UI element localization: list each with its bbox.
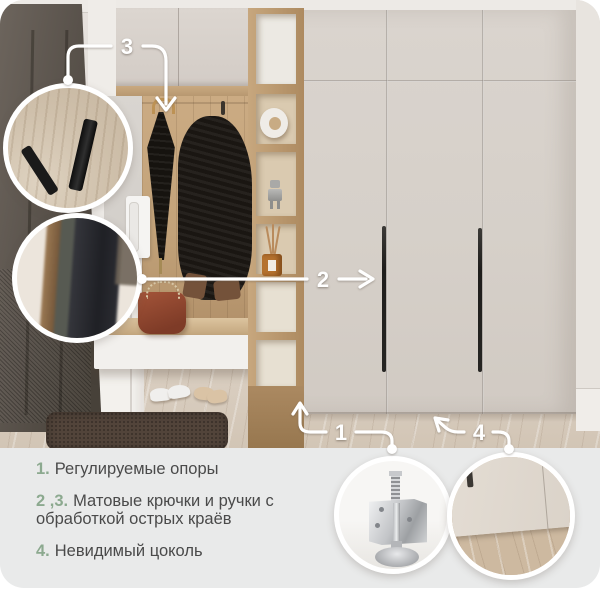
wardrobe-handle-right (478, 228, 482, 372)
ring-hole (269, 117, 281, 130)
wardrobe-door-seam (482, 10, 484, 414)
bag-chain-strap (146, 281, 180, 299)
coat-cuff (182, 272, 208, 299)
reed-stick (273, 226, 280, 256)
foot-base-disc (375, 547, 419, 567)
baseboard (576, 388, 600, 431)
robot-figurine (266, 180, 284, 210)
wardrobe-handle-left (382, 226, 386, 372)
feature-text: Регулируемые опоры (55, 460, 219, 478)
robot-head (270, 180, 280, 188)
plinth-door-seam (540, 452, 548, 529)
foot-rod-lower (393, 503, 400, 545)
feature-item-1: 1.Регулируемые опоры (36, 460, 344, 479)
bracket-hole (379, 507, 384, 512)
bracket-hole (375, 523, 380, 528)
hook-arm-right (68, 118, 98, 191)
ring-sculpture (260, 108, 288, 138)
umbrella-tip (159, 258, 162, 274)
features-list: 1.Регулируемые опоры 2 ,3.Матовые крючки… (36, 460, 344, 574)
shelf-base (248, 386, 304, 448)
shelf-compartment (256, 14, 296, 84)
inset-photo-handle-profile (12, 213, 142, 343)
robot-leg (277, 201, 280, 209)
bench-drawer (94, 335, 254, 369)
feature-item-4: 4.Невидимый цоколь (36, 542, 344, 561)
cabinet-seam (178, 8, 179, 86)
callout-label-4: 4 (464, 420, 494, 446)
handle-closeup (12, 213, 142, 343)
leather-bag (138, 292, 186, 334)
coat-cuff (213, 279, 241, 302)
foot-rod-cap (389, 471, 402, 476)
callout-label-2: 2 (308, 267, 338, 293)
coat-hook (221, 101, 225, 115)
hook-arm-left (20, 145, 59, 196)
product-feature-card: 3 2 1 4 1.Регулируемые опоры 2 ,3.Матовы… (0, 0, 600, 588)
feature-number: 2 ,3. (36, 492, 68, 510)
shelf-compartment (256, 282, 296, 332)
reed-diffuser (262, 226, 284, 276)
callout-label-3: 3 (112, 34, 142, 60)
doormat-rug (46, 412, 228, 448)
plinth-handle-end (465, 463, 473, 487)
robot-leg (270, 201, 273, 209)
feature-text: Невидимый цоколь (55, 542, 203, 560)
diffuser-bottle (262, 254, 282, 276)
shelf-compartment (256, 340, 296, 386)
feature-number: 4. (36, 542, 50, 560)
foot-threaded-rod (391, 473, 400, 503)
inset-photo-invisible-plinth (447, 452, 575, 580)
umbrella-handle-hook (152, 98, 175, 114)
robot-body (268, 189, 282, 201)
feature-item-2-3: 2 ,3.Матовые крючки и ручки с обработкой… (36, 492, 344, 529)
inset-photo-matte-hook (3, 83, 133, 213)
diffuser-label (268, 260, 276, 271)
wardrobe-door-seam (386, 10, 388, 414)
feature-text: Матовые крючки и ручки с обработкой остр… (36, 492, 274, 529)
plinth-door-panel (447, 452, 575, 537)
wardrobe-horizontal-seam (300, 80, 576, 82)
callout-label-1: 1 (326, 420, 356, 446)
inset-photo-adjustable-foot (334, 456, 452, 574)
right-wall (576, 0, 600, 392)
bracket-hole (407, 517, 412, 522)
open-shelf-column (248, 8, 304, 448)
wardrobe-doors (300, 10, 576, 414)
feature-number: 1. (36, 460, 50, 478)
